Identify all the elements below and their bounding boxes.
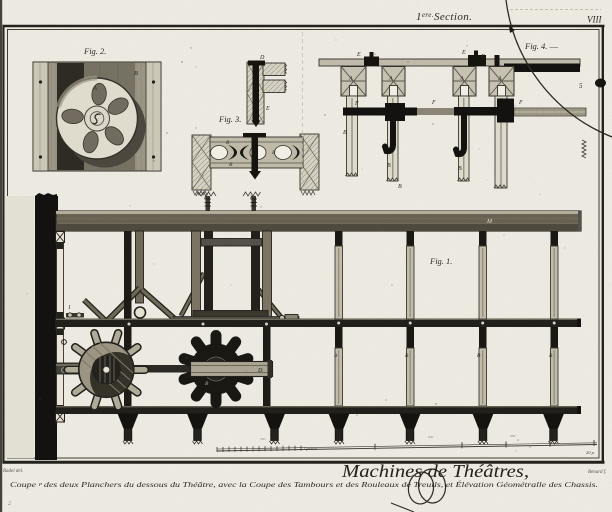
svg-text:E: E: [480, 54, 485, 60]
svg-text:E: E: [265, 106, 270, 112]
svg-text:20 p.: 20 p.: [586, 450, 595, 455]
svg-text:A: A: [459, 76, 464, 82]
svg-text:Fig. 3.: Fig. 3.: [218, 114, 241, 124]
svg-text:D: D: [259, 55, 265, 61]
svg-text:Fig. 4. —: Fig. 4. —: [524, 41, 559, 51]
svg-text:E: E: [461, 50, 466, 56]
svg-text:A: A: [92, 85, 97, 92]
svg-text:Benard f.: Benard f.: [588, 470, 606, 475]
svg-text:F: F: [431, 100, 436, 106]
svg-text:F: F: [518, 100, 523, 106]
svg-text:B: B: [387, 163, 391, 169]
svg-text:F: F: [354, 101, 359, 107]
svg-text:D: D: [257, 368, 263, 374]
svg-text:E: E: [356, 52, 361, 58]
svg-text:300: 300: [260, 437, 266, 441]
svg-text:B: B: [134, 70, 138, 77]
svg-text:Fig. 1.: Fig. 1.: [429, 256, 452, 266]
svg-text:Coupe ᵖ des deux Planchers du: Coupe ᵖ des deux Planchers du dessous du…: [10, 479, 598, 489]
svg-text:Fig. 2.: Fig. 2.: [83, 46, 106, 56]
svg-text:Radel del.: Radel del.: [2, 469, 23, 474]
svg-text:5: 5: [579, 82, 583, 90]
svg-text:2: 2: [8, 501, 11, 507]
svg-text:900: 900: [510, 434, 516, 438]
svg-text:600: 600: [428, 435, 434, 439]
svg-text:B: B: [398, 184, 402, 190]
svg-text:Machines de Théâtres,: Machines de Théâtres,: [341, 461, 529, 481]
svg-text:M: M: [486, 219, 493, 225]
svg-text:1 pouce: 1 pouce: [303, 446, 317, 451]
svg-text:A: A: [388, 76, 393, 82]
svg-text:B: B: [458, 166, 462, 172]
svg-text:VIII: VIII: [587, 15, 602, 25]
svg-text:B: B: [343, 130, 347, 136]
svg-text:A: A: [348, 76, 353, 82]
svg-text:A: A: [497, 76, 502, 82]
svg-text:1: 1: [68, 305, 71, 311]
